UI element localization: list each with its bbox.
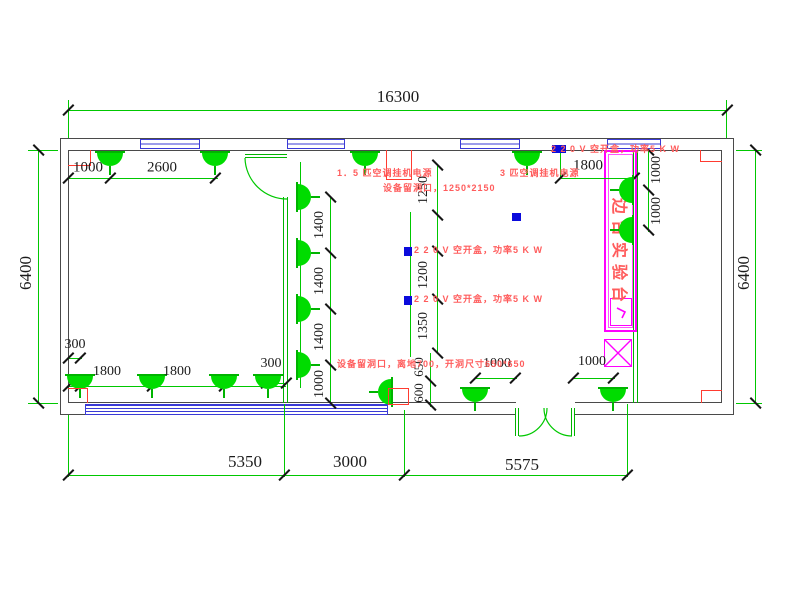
dimension-label: 1800	[93, 364, 121, 380]
lamp-bar	[632, 215, 634, 245]
lamp-dome	[202, 153, 228, 166]
dimension-label: 1000	[73, 160, 103, 177]
lamp-dome	[619, 217, 632, 243]
lamp-dome	[211, 376, 237, 389]
lamp-stem	[369, 391, 378, 393]
dimension-label: 1000	[312, 370, 328, 398]
lamp-dome	[514, 153, 540, 166]
dimension-label: 6400	[16, 256, 36, 290]
wiring-dimension-line	[68, 475, 628, 476]
ceiling-lamp-icon	[618, 175, 648, 205]
dimension-label: 16300	[377, 87, 420, 107]
window-symbol	[140, 139, 200, 149]
lamp-stem	[474, 402, 476, 411]
wiring-dimension-line	[330, 197, 331, 403]
lamp-dome	[600, 389, 626, 402]
floor-drain-cross	[605, 340, 631, 366]
dimension-label: 1400	[312, 267, 328, 295]
power-socket-icon	[404, 296, 412, 305]
lamp-dome	[462, 389, 488, 402]
wiring-dimension-line	[38, 150, 39, 403]
dimension-label: 6400	[734, 256, 754, 290]
corner-mark-bottom-left	[68, 388, 88, 403]
double-door-arc-right	[544, 408, 572, 436]
corner-mark-top-right	[700, 150, 722, 162]
power-socket-icon	[512, 213, 521, 221]
lamp-dome	[619, 177, 632, 203]
lamp-dome	[255, 376, 281, 389]
sink-faucet-icon	[617, 308, 625, 318]
power-socket-icon	[404, 247, 412, 256]
lamp-stem	[151, 389, 153, 398]
wiring-dimension-line	[755, 150, 756, 403]
corner-mark-bottom-right	[701, 390, 722, 403]
dimension-label: 1800	[163, 364, 191, 380]
floor-plan-canvas: 边台实验台 1630064006400535030005575100026001…	[0, 0, 800, 600]
wiring-dimension-line	[410, 212, 411, 357]
lamp-dome	[298, 352, 311, 378]
lamp-stem	[109, 166, 111, 175]
lamp-stem	[311, 252, 320, 254]
single-door-arc	[245, 158, 287, 199]
wiring-dimension-line	[28, 403, 58, 404]
lamp-bar	[632, 175, 634, 205]
wiring-dimension-line	[404, 410, 405, 477]
ceiling-lamp-icon	[209, 360, 239, 390]
dimension-label: 1400	[312, 323, 328, 351]
dimension-label: 1200	[416, 261, 432, 289]
lamp-dome	[352, 153, 378, 166]
lamp-stem	[610, 229, 619, 231]
annotation-text: 设备留洞口，离地700，开洞尺寸650*650	[337, 357, 526, 370]
wiring-dimension-line	[68, 110, 727, 111]
dimension-label: 300	[261, 356, 282, 372]
dimension-label: 1400	[312, 211, 328, 239]
annotation-text: 2 2 0 V 空开盒，功率5 K W	[414, 292, 543, 305]
ceiling-lamp-icon	[282, 350, 312, 380]
ceiling-lamp-icon	[350, 137, 380, 167]
ceiling-lamp-icon	[618, 215, 648, 245]
dimension-label: 1000	[578, 354, 606, 370]
lamp-stem	[214, 166, 216, 175]
dimension-label: 1000	[649, 156, 665, 184]
lamp-dome	[298, 240, 311, 266]
lamp-dome	[298, 296, 311, 322]
lamp-stem	[223, 389, 225, 398]
ceiling-lamp-icon	[200, 137, 230, 167]
wiring-dimension-line	[68, 100, 69, 138]
annotation-text: 设备留洞口，1250*2150	[383, 181, 496, 194]
ceiling-lamp-icon	[282, 294, 312, 324]
wiring-dimension-line	[627, 404, 628, 477]
equipment-opening-bottom	[388, 388, 409, 405]
ceiling-lamp-icon	[460, 373, 490, 403]
annotation-text: 3 匹空调挂机电源	[500, 166, 580, 179]
lamp-stem	[311, 196, 320, 198]
lamp-stem	[267, 389, 269, 398]
ceiling-lamp-icon	[598, 373, 628, 403]
annotation-text: 2 2 0 V 空开盒，功率5 K W	[551, 142, 680, 155]
dimension-label: 5575	[505, 455, 539, 475]
wiring-dimension-line	[284, 404, 285, 477]
dimension-label: 1000	[649, 197, 665, 225]
dimension-label: 600	[411, 383, 427, 403]
lamp-stem	[311, 308, 320, 310]
annotation-text: 2 2 0 V 空开盒，功率5 K W	[414, 243, 543, 256]
annotation-text: 1．5 匹空调挂机电源	[337, 166, 433, 179]
ceiling-lamp-icon	[282, 238, 312, 268]
ceiling-lamp-icon	[282, 182, 312, 212]
double-door-arc-left	[519, 408, 547, 436]
wiring-dimension-line	[68, 415, 69, 477]
lamp-stem	[311, 364, 320, 366]
lamp-stem	[612, 402, 614, 411]
dimension-label: 1350	[416, 312, 432, 340]
dimension-label: 3000	[333, 452, 367, 472]
wiring-dimension-line	[726, 100, 727, 138]
window-symbol	[287, 139, 345, 149]
ceiling-lamp-icon	[65, 360, 95, 390]
dimension-label: 2600	[147, 160, 177, 177]
wiring-dimension-line	[28, 150, 58, 151]
lamp-dome	[139, 376, 165, 389]
lamp-dome	[298, 184, 311, 210]
wiring-dimension-line	[68, 178, 218, 179]
lamp-stem	[610, 189, 619, 191]
ceiling-lamp-icon	[512, 137, 542, 167]
dimension-label: 5350	[228, 452, 262, 472]
dimension-label: 300	[65, 337, 86, 353]
window-symbol	[460, 139, 520, 149]
